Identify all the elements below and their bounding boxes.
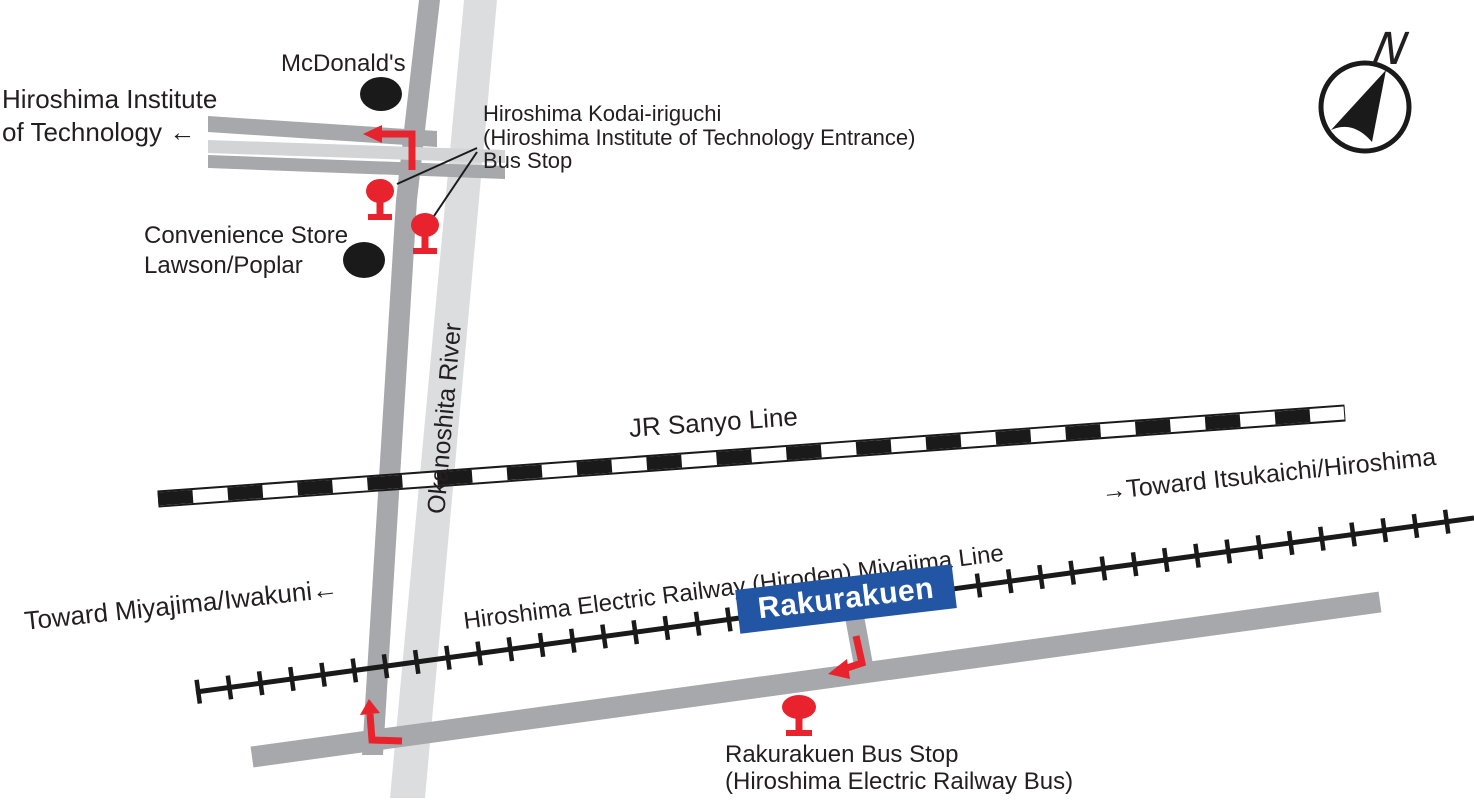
kodai-label-line3: Bus Stop — [483, 149, 915, 173]
convenience-label-line1: Convenience Store — [144, 221, 348, 251]
bus-stop-marker-rakurakuen — [782, 695, 816, 736]
access-map: Hiroshima Institute of Technology ← McDo… — [0, 0, 1474, 803]
rakurakuen-busstop-line2: (Hiroshima Electric Railway Bus) — [725, 768, 1073, 795]
rakurakuen-busstop-label: Rakurakuen Bus Stop (Hiroshima Electric … — [725, 741, 1073, 795]
bus-stop-marker-kodai-1 — [366, 179, 394, 220]
institute-destination-label: Hiroshima Institute of Technology ← — [2, 83, 217, 149]
convenience-store-poi-dot — [343, 242, 385, 278]
institute-label-line1: Hiroshima Institute — [2, 83, 217, 116]
convenience-label-line2: Lawson/Poplar — [144, 251, 348, 281]
bus-stop-marker-kodai-2 — [411, 213, 439, 254]
compass-icon — [1321, 63, 1409, 151]
convenience-store-label: Convenience Store Lawson/Poplar — [144, 221, 348, 281]
mcdonalds-label: McDonald's — [281, 50, 406, 78]
mcdonalds-poi-dot — [360, 77, 402, 111]
institute-label-line2: of Technology ← — [2, 116, 217, 149]
rakurakuen-busstop-line1: Rakurakuen Bus Stop — [725, 741, 1073, 768]
kodai-iriguchi-busstop-label: Hiroshima Kodai-iriguchi (Hiroshima Inst… — [483, 102, 915, 173]
kodai-label-line2: (Hiroshima Institute of Technology Entra… — [483, 126, 915, 150]
kodai-label-line1: Hiroshima Kodai-iriguchi — [483, 102, 915, 126]
